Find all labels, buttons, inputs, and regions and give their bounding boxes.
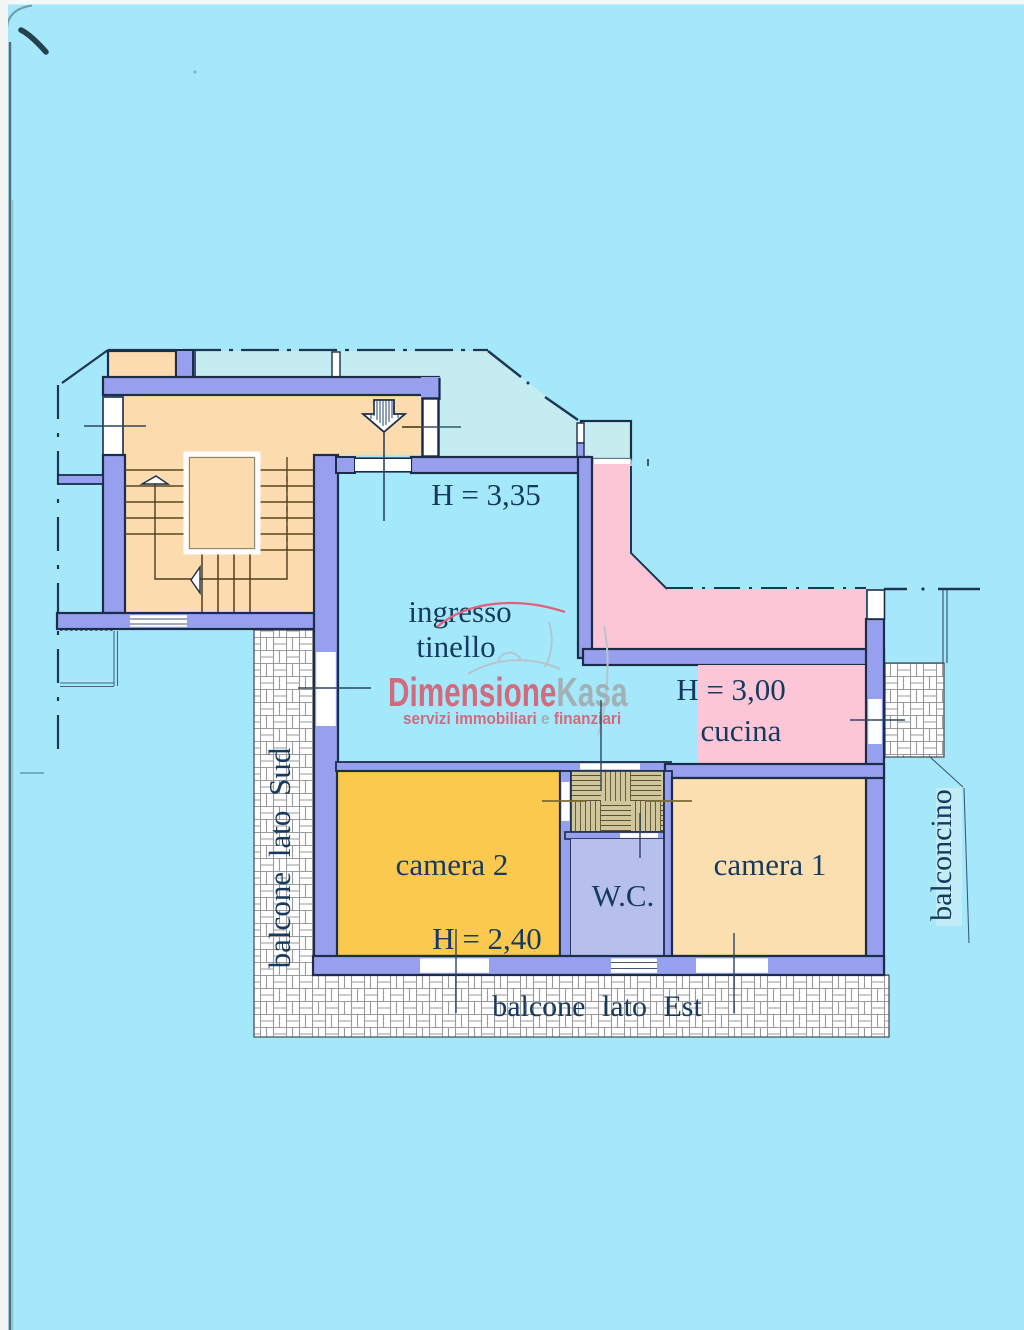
svg-text:W.C.: W.C. <box>592 878 655 913</box>
svg-text:balcone lato Sud: balcone lato Sud <box>262 747 297 968</box>
svg-text:tinello: tinello <box>416 629 495 664</box>
svg-text:H = 3,00: H = 3,00 <box>676 672 786 707</box>
svg-text:camera 2: camera 2 <box>396 847 509 882</box>
svg-text:camera 1: camera 1 <box>714 847 827 882</box>
svg-text:servizi immobiliari e finanzia: servizi immobiliari e finanziari <box>403 711 621 729</box>
svg-text:H = 2,40: H = 2,40 <box>432 921 542 956</box>
svg-text:cucina: cucina <box>701 713 782 748</box>
svg-text:balcone lato Est: balcone lato Est <box>492 990 702 1023</box>
svg-text:DimensioneKasa: DimensioneKasa <box>388 669 628 715</box>
svg-text:balconcino: balconcino <box>925 789 958 921</box>
svg-text:H = 3,35: H = 3,35 <box>431 477 541 512</box>
